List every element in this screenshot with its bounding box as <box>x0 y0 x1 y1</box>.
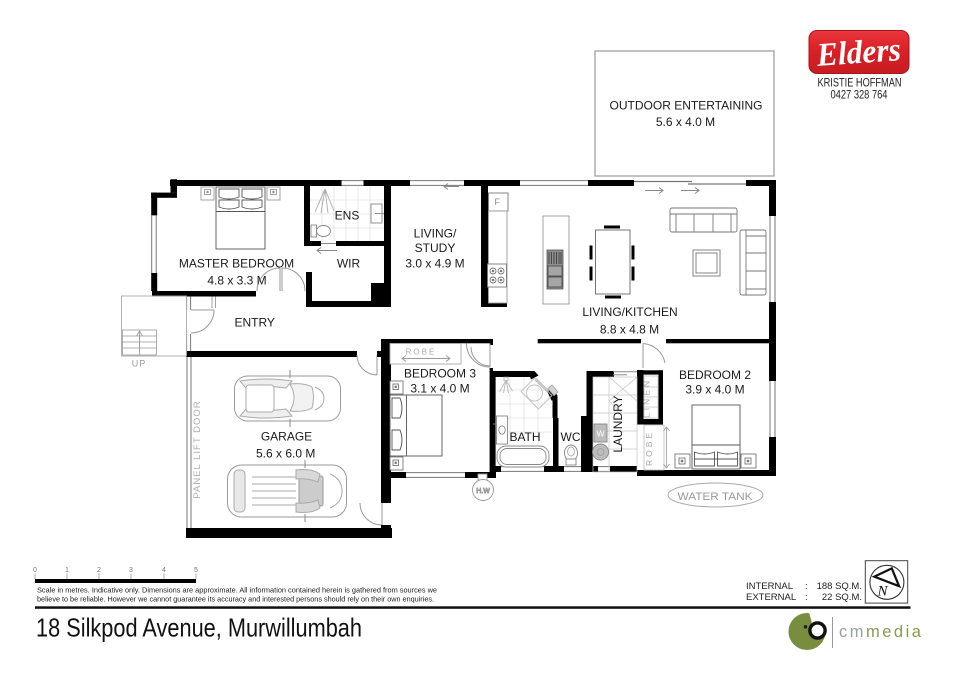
svg-text:3: 3 <box>129 567 133 574</box>
svg-text:N: N <box>876 584 888 600</box>
svg-text:LINEN: LINEN <box>642 378 652 418</box>
svg-text:5.6 x 6.0 M: 5.6 x 6.0 M <box>256 446 315 460</box>
svg-text:W: W <box>596 429 604 439</box>
svg-text:KRISTIE HOFFMAN: KRISTIE HOFFMAN <box>818 78 902 90</box>
svg-text:4.8 x 3.3 M: 4.8 x 3.3 M <box>207 274 266 288</box>
svg-text:LAUNDRY: LAUNDRY <box>611 395 625 452</box>
svg-text:0: 0 <box>33 567 37 574</box>
svg-text:LIVING/KITCHEN: LIVING/KITCHEN <box>582 305 677 319</box>
svg-text:ROBE: ROBE <box>644 430 654 466</box>
svg-text:5: 5 <box>194 567 198 574</box>
svg-text:OUTDOOR ENTERTAINING: OUTDOOR ENTERTAINING <box>610 99 763 113</box>
svg-text:F: F <box>495 197 501 207</box>
svg-text:INTERNAL: INTERNAL <box>746 581 793 592</box>
svg-text:BATH: BATH <box>509 430 540 444</box>
svg-text:ENTRY: ENTRY <box>234 316 274 330</box>
svg-text:WIR: WIR <box>337 256 361 270</box>
svg-text:BEDROOM 2: BEDROOM 2 <box>679 368 751 382</box>
svg-text:5.6 x 4.0 M: 5.6 x 4.0 M <box>656 115 715 129</box>
svg-text::: : <box>805 592 808 603</box>
svg-text:3.1 x 4.0 M: 3.1 x 4.0 M <box>410 382 469 396</box>
svg-text:believe to be reliable. Howev: believe to be reliable. However we canno… <box>37 595 434 604</box>
svg-text:PANEL LIFT DOOR: PANEL LIFT DOOR <box>192 400 203 498</box>
svg-text:22 SQ.M.: 22 SQ.M. <box>822 592 862 603</box>
svg-text:WATER TANK: WATER TANK <box>678 491 754 503</box>
svg-text::: : <box>805 581 808 592</box>
svg-text:MASTER BEDROOM: MASTER BEDROOM <box>179 256 294 270</box>
svg-text:GARAGE: GARAGE <box>261 429 312 443</box>
svg-text:0427 328 764: 0427 328 764 <box>831 90 888 102</box>
svg-text:8.8 x 4.8 M: 8.8 x 4.8 M <box>600 323 659 337</box>
svg-text:STUDY: STUDY <box>415 241 456 255</box>
svg-text:Scale in metres. Indicative o: Scale in metres. Indicative only. Dimens… <box>37 586 437 595</box>
svg-text:BEDROOM 3: BEDROOM 3 <box>404 367 476 381</box>
svg-text:Elders: Elders <box>815 32 902 74</box>
svg-text:H.W: H.W <box>476 488 490 495</box>
svg-text:UP: UP <box>132 359 147 369</box>
svg-text:188 SQ.M.: 188 SQ.M. <box>817 581 862 592</box>
svg-text:1: 1 <box>65 567 69 574</box>
svg-text:2: 2 <box>97 567 101 574</box>
svg-text:18 Silkpod Avenue, Murwillumba: 18 Silkpod Avenue, Murwillumbah <box>36 613 362 643</box>
svg-text:4: 4 <box>162 567 166 574</box>
svg-text:3.0 x 4.9 M: 3.0 x 4.9 M <box>405 257 464 271</box>
svg-text:cmmedia: cmmedia <box>839 623 923 641</box>
svg-text:WC: WC <box>561 430 581 444</box>
svg-text:3.9 x 4.0 M: 3.9 x 4.0 M <box>685 383 744 397</box>
svg-text:LIVING/: LIVING/ <box>414 226 457 240</box>
svg-text:ROBE: ROBE <box>406 348 437 357</box>
svg-text:ENS: ENS <box>335 209 360 223</box>
svg-text:EXTERNAL: EXTERNAL <box>746 592 796 603</box>
